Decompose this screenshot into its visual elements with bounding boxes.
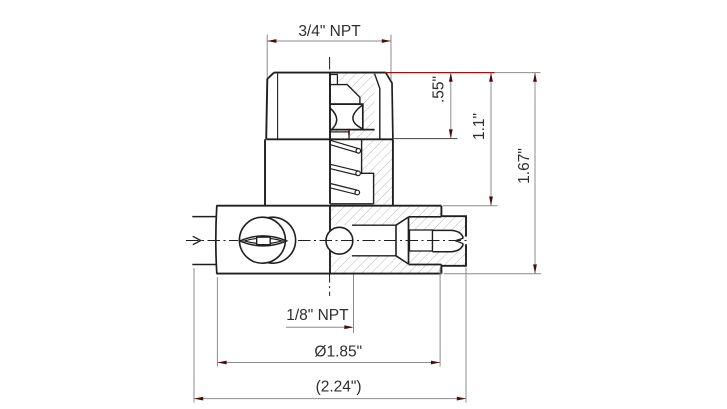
svg-text:(2.24"): (2.24") xyxy=(316,379,362,396)
svg-text:1.1": 1.1" xyxy=(471,113,488,140)
svg-text:.55": .55" xyxy=(431,76,448,103)
svg-text:3/4" NPT: 3/4" NPT xyxy=(298,23,361,40)
svg-text:1.67": 1.67" xyxy=(516,148,533,184)
svg-text:Ø1.85": Ø1.85" xyxy=(314,344,362,361)
svg-text:1/8" NPT: 1/8" NPT xyxy=(286,307,349,324)
